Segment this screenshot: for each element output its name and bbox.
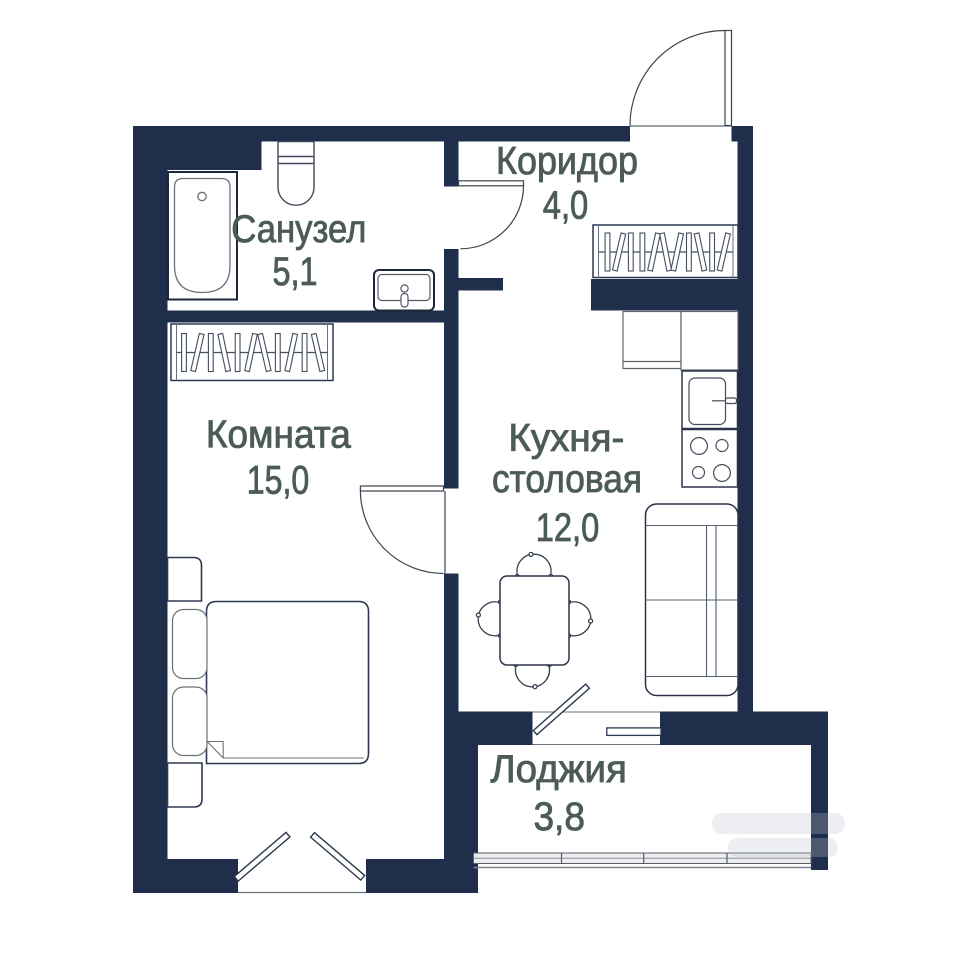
svg-text:столовая: столовая	[492, 458, 642, 501]
svg-text:5,1: 5,1	[273, 250, 318, 294]
svg-text:12,0: 12,0	[536, 506, 600, 550]
svg-text:3,8: 3,8	[533, 795, 585, 839]
svg-text:Коридор: Коридор	[496, 140, 638, 183]
svg-text:Комната: Комната	[206, 414, 351, 457]
svg-text:Лоджия: Лоджия	[490, 748, 627, 791]
svg-text:4,0: 4,0	[543, 184, 589, 228]
svg-text:Кухня-: Кухня-	[508, 417, 624, 460]
svg-text:15,0: 15,0	[247, 459, 310, 503]
svg-text:Санузел: Санузел	[231, 208, 366, 251]
